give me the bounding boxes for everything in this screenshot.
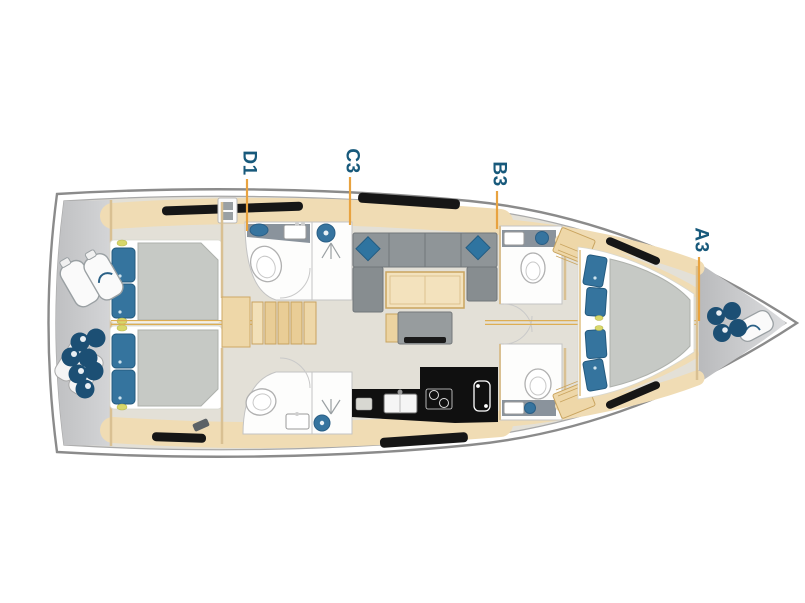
bed-pillow xyxy=(112,334,135,368)
sink-icon xyxy=(250,224,268,236)
saloon-table xyxy=(386,272,464,308)
reading-light-icon xyxy=(117,240,127,246)
stern-swim-platform xyxy=(56,200,111,446)
bed-pillow xyxy=(585,329,607,358)
window-aft-starboard xyxy=(152,432,206,443)
tv-bench xyxy=(386,312,452,344)
cabin-label-b3: B3 xyxy=(489,161,510,186)
sink-basin xyxy=(504,402,524,414)
sink-basin xyxy=(284,225,306,239)
cutting-board xyxy=(356,398,372,410)
tv-icon xyxy=(404,337,446,343)
sink-basin xyxy=(504,232,524,245)
cabin-label-d1: D1 xyxy=(239,150,260,175)
sink-basin xyxy=(286,414,309,429)
bed-duvet xyxy=(138,243,218,320)
aft-cabin-starboard xyxy=(110,325,222,410)
companionway-stairs xyxy=(222,297,316,347)
yacht-floor-plan: D1 C3 B3 A3 xyxy=(0,0,805,603)
head-aft-port xyxy=(245,222,352,300)
reading-light-icon xyxy=(117,325,127,331)
reading-light-icon xyxy=(117,404,127,410)
aft-cabin-port xyxy=(110,240,222,324)
cabin-label-c3: C3 xyxy=(342,148,363,173)
bed-pillow xyxy=(585,287,607,316)
bed-duvet xyxy=(138,330,218,406)
reading-light-icon xyxy=(595,326,603,331)
reading-light-icon xyxy=(595,316,603,321)
sink-icon xyxy=(525,403,536,414)
cabin-label-a3: A3 xyxy=(691,227,712,252)
floor-plan-canvas: D1 C3 B3 A3 xyxy=(0,0,805,603)
bed-pillow xyxy=(112,370,135,404)
sink-icon xyxy=(536,232,549,245)
toilet-icon xyxy=(521,253,545,283)
